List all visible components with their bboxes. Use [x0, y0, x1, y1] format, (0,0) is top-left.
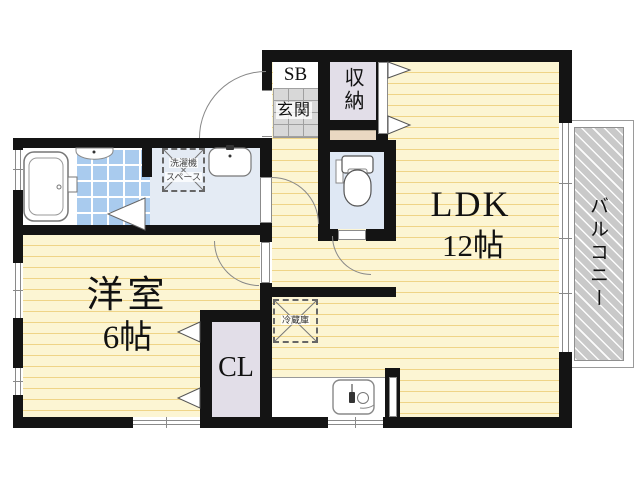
wall-bath-divider: [142, 148, 152, 177]
entrance-step-line: [273, 137, 318, 138]
room-label-entrance: 玄関: [276, 103, 312, 119]
balcony-label: バルコニー: [587, 196, 608, 311]
kitchen-bottom-window: [328, 417, 383, 428]
ldk-size: 12帖: [442, 228, 504, 263]
ldk-name: LDK: [431, 184, 511, 224]
wall-kitchen-top: [272, 287, 396, 297]
western-door-leaf: [261, 242, 270, 283]
entrance-label: 玄関: [276, 102, 312, 119]
fridge-label: 冷蔵庫: [281, 315, 310, 325]
room-label-western-size: 6帖: [55, 322, 200, 355]
balcony-sliding-window: [559, 123, 572, 352]
room-label-closet: CL: [204, 354, 268, 382]
wall-bottom: [13, 417, 572, 428]
bathroom-tile: [75, 148, 150, 225]
entry-door-arc: [199, 71, 266, 138]
washer-label-line1: 洗濯機: [169, 158, 198, 168]
room-label-ldk: LDK: [398, 186, 543, 222]
shoebox-label: SB: [284, 64, 307, 85]
kitchen-divider-slot: [389, 377, 397, 417]
wall-storage-bottom: [330, 120, 376, 130]
wall-topleft-block: [13, 138, 272, 148]
wall-corridor-c: [260, 283, 272, 417]
western-bottom-window: [133, 417, 200, 428]
toilet-floor: [330, 152, 384, 229]
wall-corridor-a: [260, 138, 272, 177]
western-window-2: [13, 368, 23, 395]
wall-top: [262, 50, 572, 62]
bathroom-floor: [23, 148, 75, 225]
wall-corridor-b: [260, 223, 272, 242]
room-label-storage: 収納: [342, 67, 362, 113]
closet-label: CL: [218, 352, 254, 383]
western-size: 6帖: [103, 320, 153, 356]
fixture-label-washer: 洗濯機 スペース: [160, 156, 207, 185]
western-window-1: [13, 263, 23, 318]
storage-door-panel: [378, 62, 388, 134]
room-label-ldk-size: 12帖: [398, 230, 548, 261]
washroom-door-panel: [260, 177, 272, 223]
kitchen-counter: [272, 377, 385, 418]
washer-label-line2: スペース: [165, 172, 202, 182]
wall-mid: [13, 225, 272, 235]
room-label-western: 洋室: [55, 277, 200, 314]
wall-toilet-left: [318, 140, 330, 241]
room-label-balcony: バルコニー: [588, 196, 607, 311]
western-name: 洋室: [87, 275, 169, 316]
wall-entrance-right: [318, 50, 330, 140]
fixture-label-fridge: 冷蔵庫: [271, 316, 320, 325]
wall-right-upper: [559, 50, 572, 123]
bathroom-window: [13, 150, 23, 190]
storage-label: 収納: [341, 67, 363, 113]
floor-plan: LDK 12帖 洋室 6帖 CL SB 玄関 収納 バルコニー 洗濯機 スペース…: [0, 0, 640, 480]
room-label-shoebox: SB: [273, 65, 318, 84]
wall-toilet-right: [384, 140, 396, 241]
